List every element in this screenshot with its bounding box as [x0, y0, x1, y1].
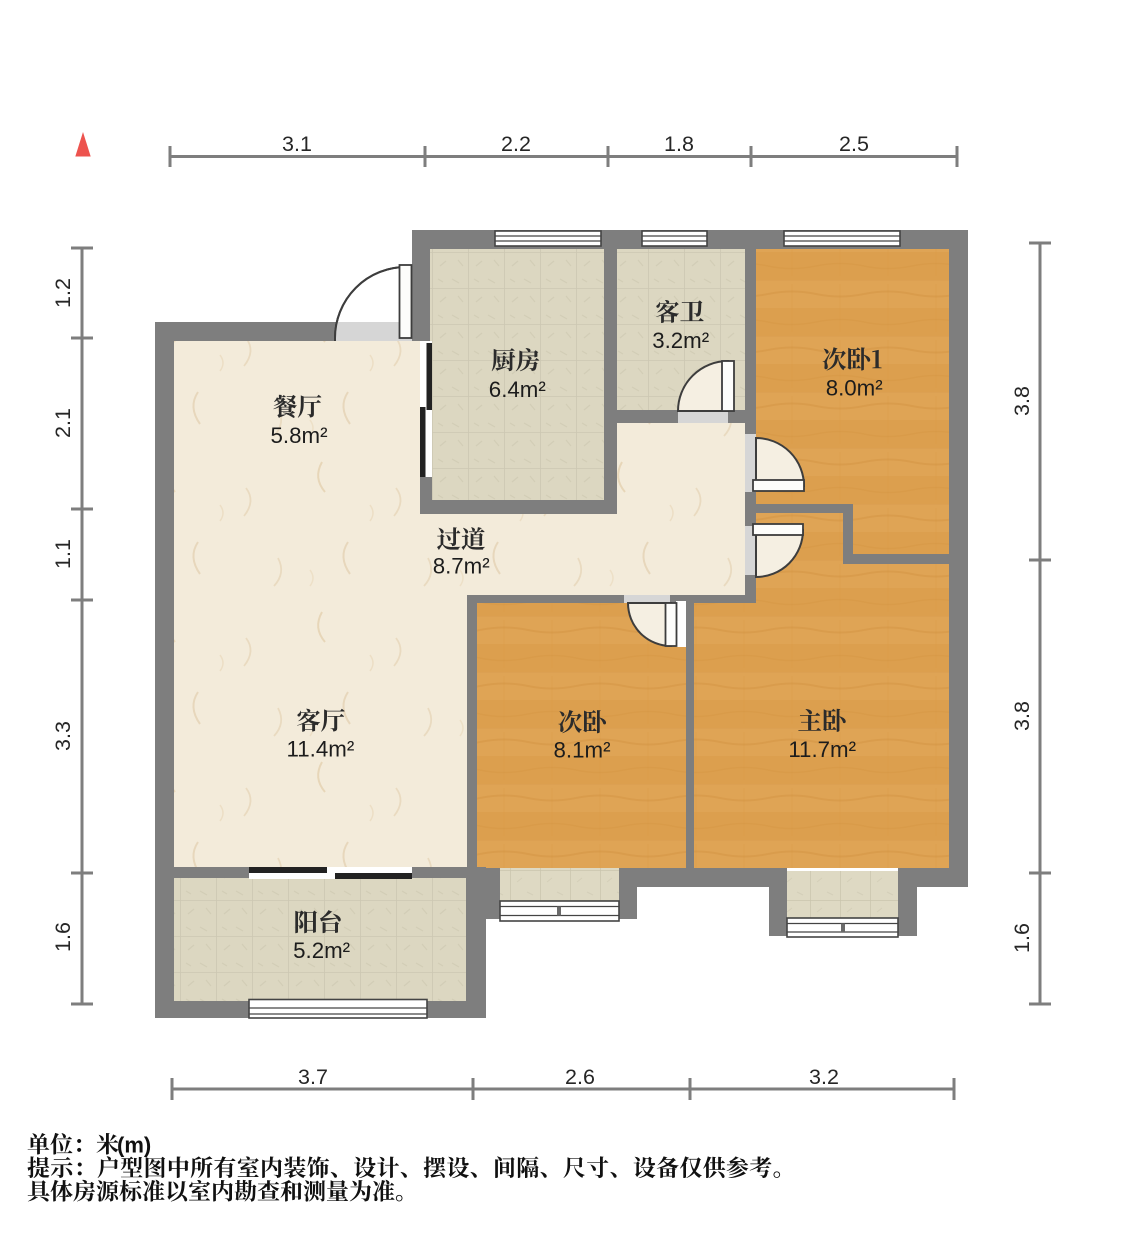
- svg-text:5.2m²: 5.2m²: [293, 938, 350, 963]
- svg-text:3.7: 3.7: [298, 1065, 328, 1089]
- svg-text:1.2: 1.2: [51, 278, 75, 308]
- svg-text:1.6: 1.6: [51, 922, 75, 952]
- svg-text:(m): (m): [117, 1133, 151, 1158]
- svg-text:3.2m²: 3.2m²: [652, 328, 709, 353]
- svg-text:3.1: 3.1: [282, 132, 312, 156]
- svg-text:8.0m²: 8.0m²: [826, 376, 883, 401]
- svg-text:2.1: 2.1: [51, 408, 75, 438]
- svg-text:1.8: 1.8: [664, 132, 694, 156]
- svg-text:5.8m²: 5.8m²: [271, 423, 328, 448]
- svg-text:3.3: 3.3: [51, 721, 75, 751]
- svg-text:3.8: 3.8: [1010, 386, 1034, 416]
- svg-text:11.4m²: 11.4m²: [287, 736, 355, 761]
- svg-text:2.6: 2.6: [565, 1065, 595, 1089]
- svg-text:2.5: 2.5: [839, 132, 869, 156]
- svg-text:3.8: 3.8: [1010, 701, 1034, 731]
- svg-text:11.7m²: 11.7m²: [788, 737, 856, 762]
- svg-text:6.4m²: 6.4m²: [489, 377, 546, 402]
- svg-text:8.7m²: 8.7m²: [433, 554, 490, 579]
- svg-text:8.1m²: 8.1m²: [554, 737, 611, 762]
- svg-text:3.2: 3.2: [809, 1065, 839, 1089]
- svg-text:1.6: 1.6: [1010, 923, 1034, 953]
- svg-text:2.2: 2.2: [501, 132, 531, 156]
- svg-text:1.1: 1.1: [51, 539, 75, 569]
